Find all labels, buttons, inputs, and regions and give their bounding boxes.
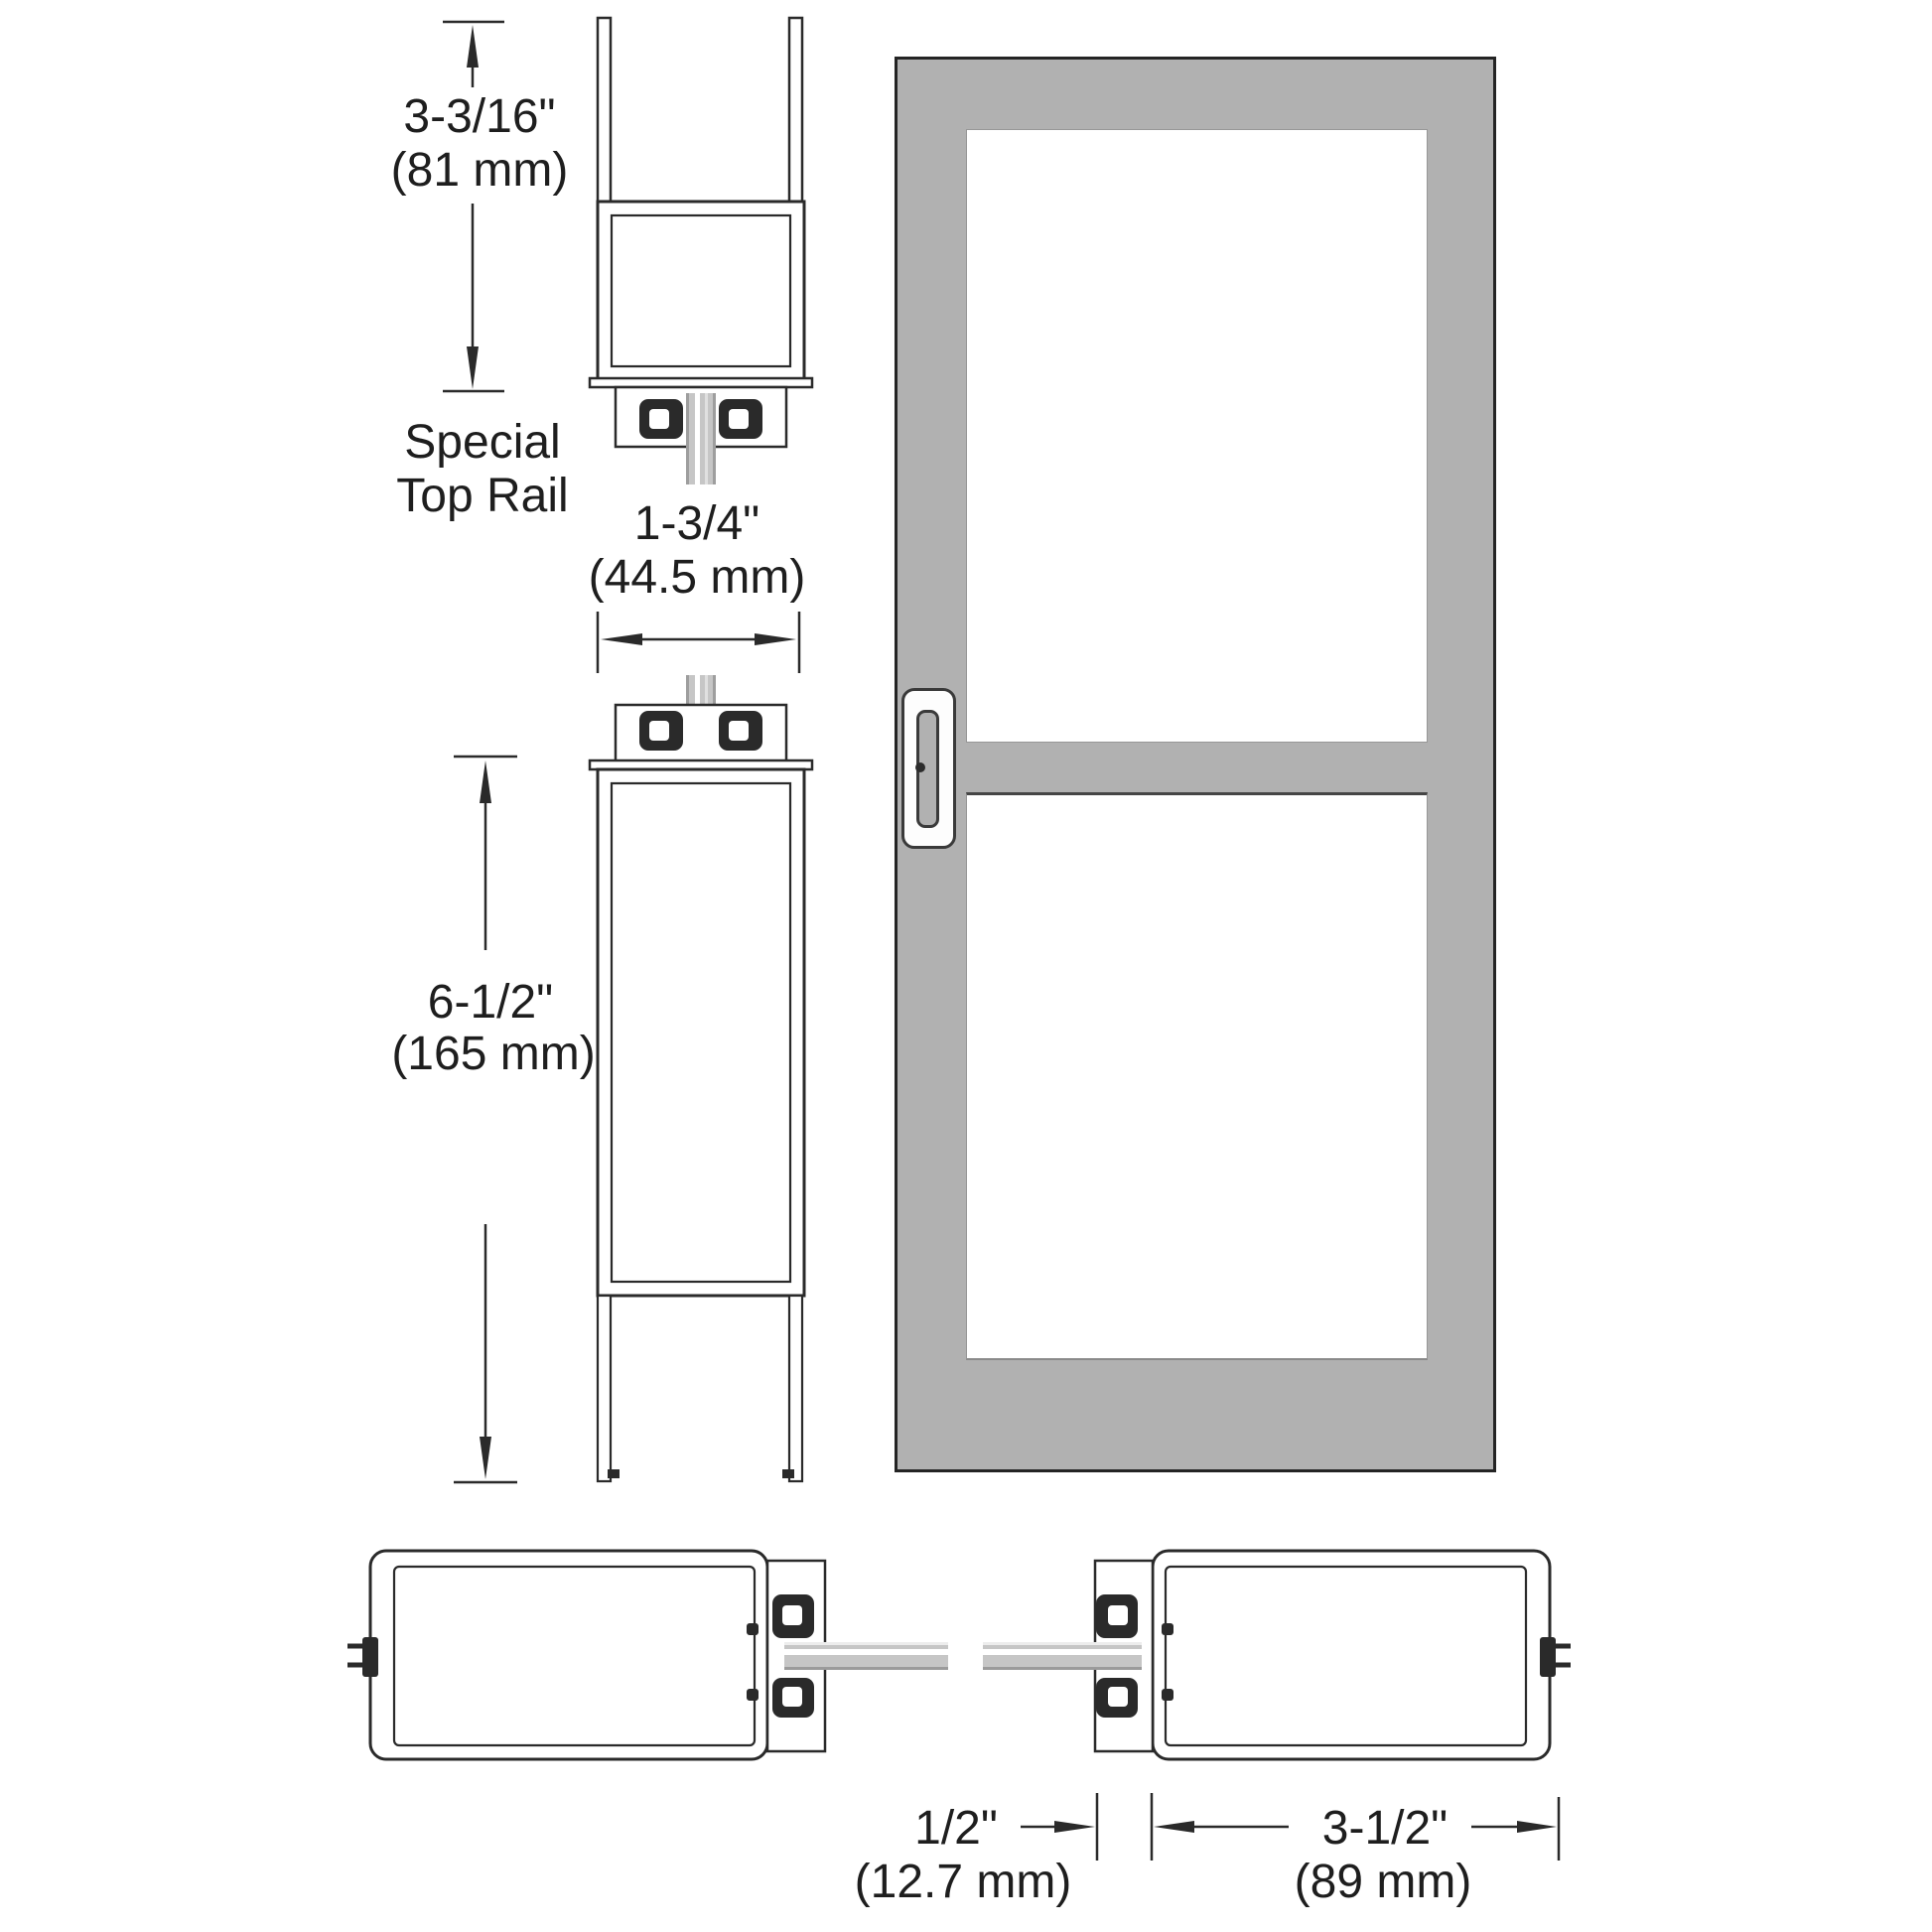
top-rail-section-drawing: [590, 18, 812, 484]
dim-glass-gap-inches: 1/2": [914, 1803, 998, 1855]
right-stile-section-drawing: [983, 1551, 1571, 1759]
pivot-pin-left: [347, 1637, 378, 1677]
door-elevation: [895, 57, 1496, 1472]
diagram-canvas: 3-3/16" (81 mm) Special Top Rail 1-3/4" …: [0, 0, 1932, 1932]
dim-glass-gap-metric: (12.7 mm): [855, 1857, 1072, 1908]
glass-panel-lower: [966, 792, 1428, 1360]
dim-top-rail-metric: (81 mm): [391, 145, 569, 197]
dim-stile-width-inches: 3-1/2": [1322, 1803, 1448, 1855]
label-special-top-rail-line1: Special: [404, 417, 560, 469]
label-special-top-rail-line2: Top Rail: [396, 471, 568, 522]
lock-cylinder: [915, 762, 925, 772]
dim-door-thickness-inches: 1-3/4": [634, 498, 759, 550]
bottom-rail-height-dimension: [454, 757, 517, 1482]
dim-door-thickness-metric: (44.5 mm): [589, 552, 806, 604]
bottom-rail-section-drawing: [590, 675, 812, 1481]
dim-bottom-rail-inches: 6-1/2": [428, 977, 553, 1029]
left-stile-section-drawing: [347, 1551, 948, 1759]
glass-gap-dimension: [1021, 1793, 1152, 1861]
glass-edge-top-rail: [686, 393, 716, 484]
dim-stile-width-metric: (89 mm): [1295, 1857, 1472, 1908]
top-rail-height-dimension: [443, 22, 504, 391]
door-sweep-foot-left: [608, 1469, 620, 1478]
glass-edge-left: [784, 1642, 948, 1670]
glass-edge-right: [983, 1642, 1142, 1670]
pivot-pin-right: [1540, 1637, 1571, 1677]
glass-panel-upper: [966, 129, 1428, 743]
door-sweep-foot-right: [782, 1469, 794, 1478]
dim-bottom-rail-metric: (165 mm): [391, 1029, 595, 1080]
dim-top-rail-inches: 3-3/16": [403, 91, 555, 143]
door-thickness-dimension: [598, 612, 799, 673]
